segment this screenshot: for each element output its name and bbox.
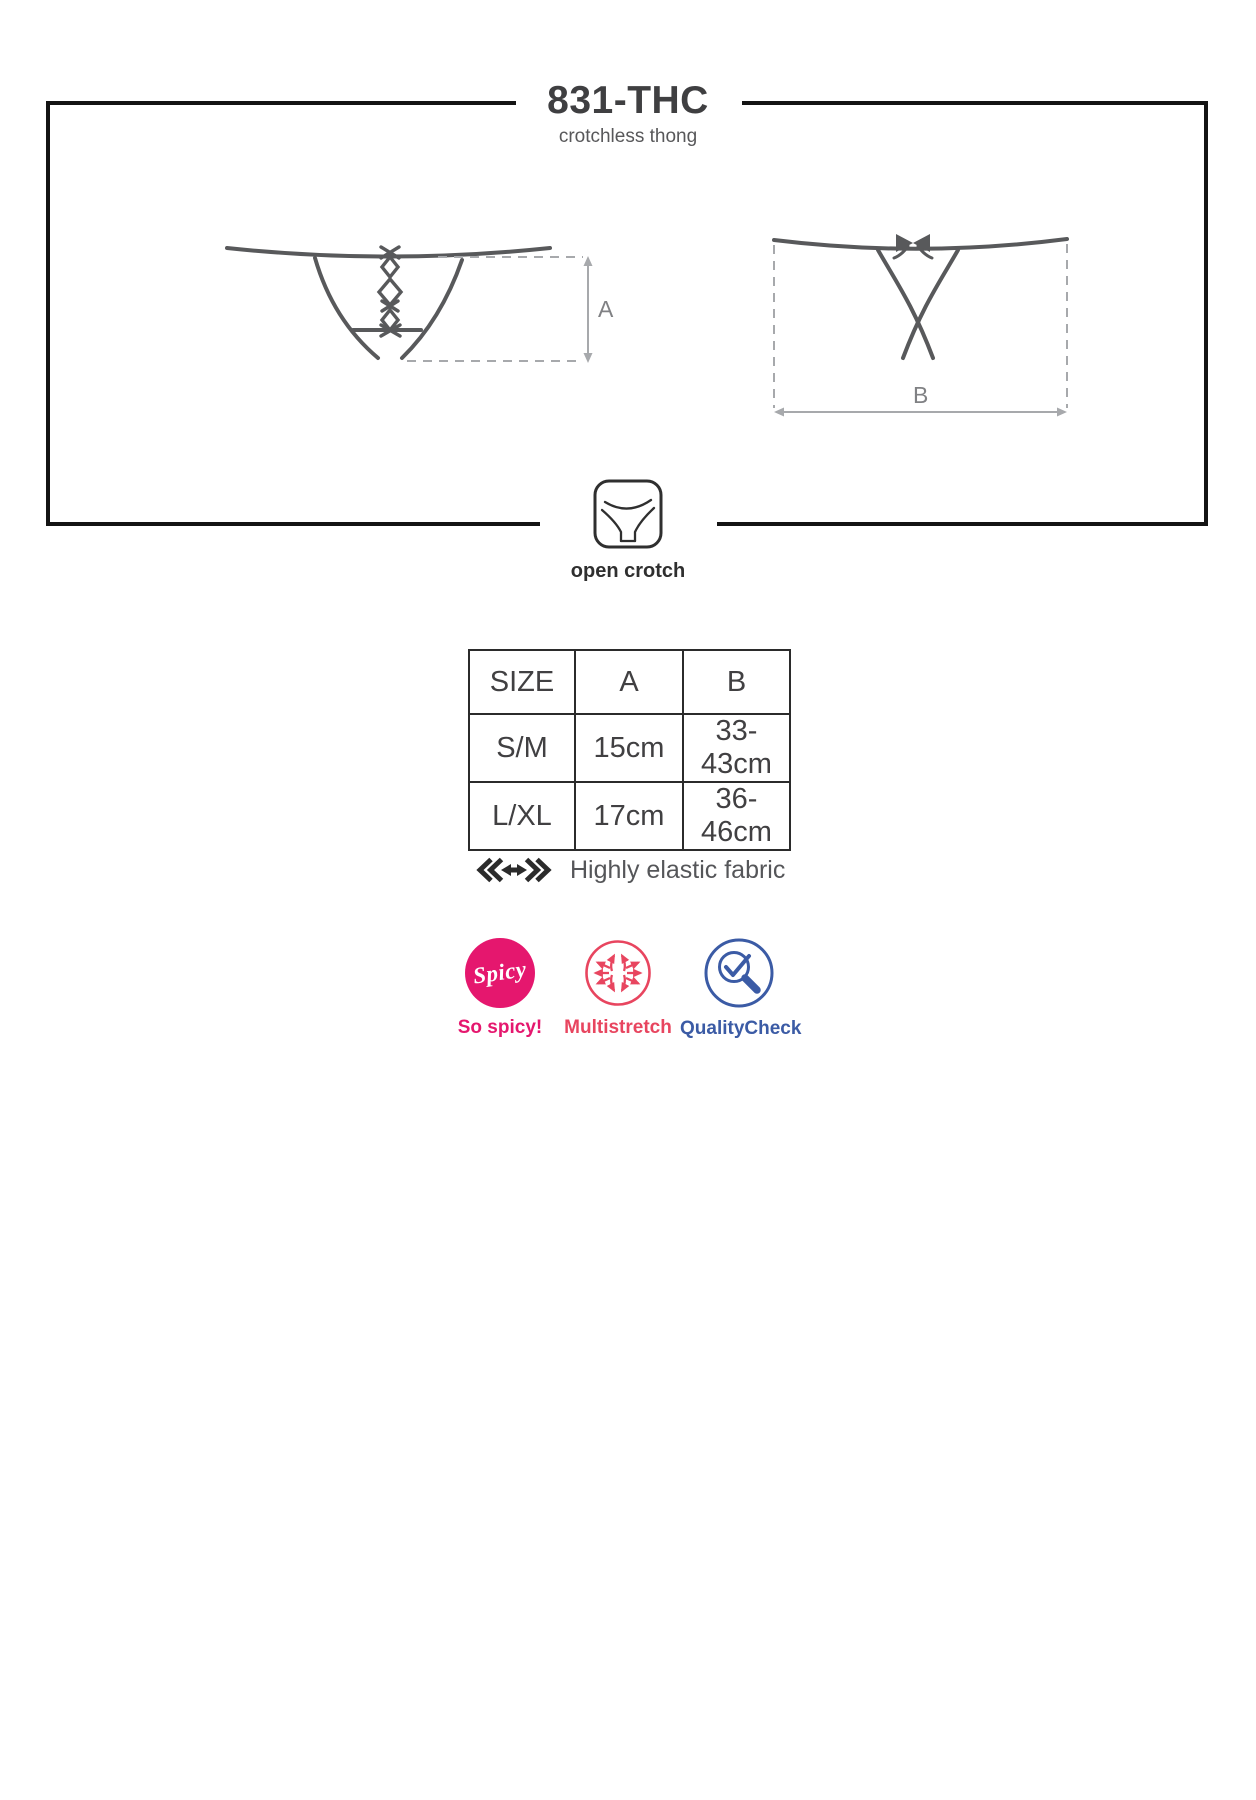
page-subtitle: crotchless thong	[0, 126, 1256, 148]
fabric-note-text: Highly elastic fabric	[570, 855, 785, 885]
badge-label-qualitycheck: QualityCheck	[680, 1018, 798, 1040]
quality-check-magnifier-icon	[703, 937, 775, 1009]
open-crotch-icon	[593, 479, 663, 549]
size-cell: L/XL	[469, 782, 575, 850]
table-row: L/XL 17cm 36-46cm	[469, 782, 790, 850]
spicy-badge-text: Spicy	[472, 956, 529, 989]
thong-back-drawing: B	[755, 225, 1090, 430]
bow-detail	[894, 234, 932, 258]
frame-border-bottom-left	[46, 522, 540, 526]
frame-border-right	[1204, 101, 1208, 526]
measure-a-cell: 15cm	[575, 714, 683, 782]
front-lacing-detail	[379, 247, 401, 336]
elastic-stretch-icon	[470, 856, 558, 884]
badge-qualitycheck: QualityCheck	[680, 937, 798, 1040]
badge-spicy: Spicy So spicy!	[445, 938, 555, 1039]
measure-b-cell: 36-46cm	[683, 782, 790, 850]
spec-sheet-page: 831-THC crotchless thong A	[0, 0, 1256, 1800]
frame-border-bottom-right	[717, 522, 1208, 526]
measure-b-cell: 33-43cm	[683, 714, 790, 782]
size-cell: S/M	[469, 714, 575, 782]
size-table: SIZE A B S/M 15cm 33-43cm L/XL 17cm 36-4…	[468, 649, 791, 851]
size-table-header-size: SIZE	[469, 650, 575, 714]
size-table-header-a: A	[575, 650, 683, 714]
badge-label-spicy: So spicy!	[445, 1017, 555, 1039]
spicy-badge-icon: Spicy	[465, 938, 535, 1008]
size-table-header-b: B	[683, 650, 790, 714]
multistretch-arrows-icon	[583, 938, 653, 1008]
dimension-label-B: B	[913, 382, 928, 408]
page-title: 831-THC	[0, 80, 1256, 122]
open-crotch-caption: open crotch	[0, 560, 1256, 583]
frame-border-left	[46, 101, 50, 526]
table-row: S/M 15cm 33-43cm	[469, 714, 790, 782]
thong-front-drawing: A	[195, 235, 615, 375]
badge-label-multistretch: Multistretch	[563, 1017, 673, 1039]
dimension-label-A: A	[598, 296, 614, 322]
badge-multistretch: Multistretch	[563, 938, 673, 1039]
size-table-header-row: SIZE A B	[469, 650, 790, 714]
measure-a-cell: 17cm	[575, 782, 683, 850]
